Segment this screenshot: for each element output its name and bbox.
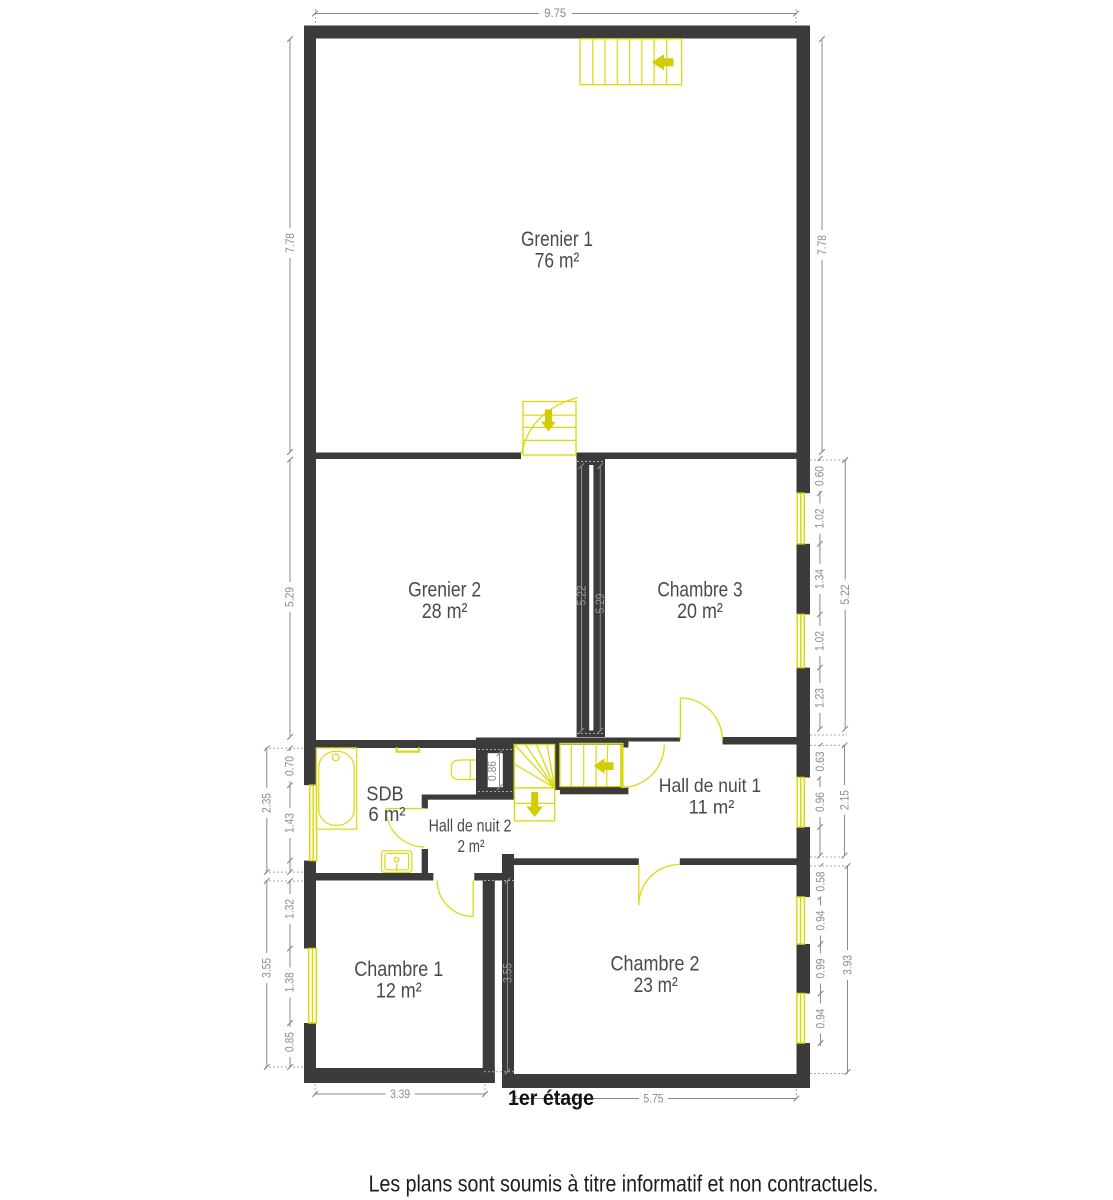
svg-text:11 m²: 11 m² (689, 797, 735, 819)
svg-text:2 m²: 2 m² (458, 836, 485, 856)
svg-text:0.63: 0.63 (815, 752, 827, 772)
svg-text:0.58: 0.58 (815, 872, 827, 892)
svg-text:1.02: 1.02 (815, 509, 827, 529)
svg-text:3.39: 3.39 (390, 1089, 410, 1101)
svg-text:0.70: 0.70 (285, 756, 297, 776)
svg-text:Hall de nuit 1: Hall de nuit 1 (659, 775, 761, 797)
svg-text:9.75: 9.75 (544, 8, 566, 20)
svg-text:1.32: 1.32 (285, 899, 297, 919)
svg-text:SDB: SDB (366, 783, 403, 805)
svg-text:5.29: 5.29 (595, 594, 607, 614)
svg-text:3.55: 3.55 (502, 963, 514, 983)
svg-text:20 m²: 20 m² (677, 600, 723, 623)
svg-text:0.60: 0.60 (815, 466, 827, 486)
svg-text:5.22: 5.22 (840, 585, 852, 605)
svg-text:1.02: 1.02 (815, 631, 827, 651)
svg-text:1.34: 1.34 (815, 568, 827, 589)
svg-text:Grenier 2: Grenier 2 (408, 578, 481, 601)
svg-text:7.78: 7.78 (285, 233, 297, 253)
svg-text:1.23: 1.23 (815, 688, 827, 708)
svg-text:0.96: 0.96 (815, 792, 827, 812)
svg-text:3.93: 3.93 (842, 955, 854, 975)
svg-text:0.86: 0.86 (487, 761, 499, 781)
svg-text:28 m²: 28 m² (422, 600, 468, 623)
svg-text:3.55: 3.55 (262, 958, 274, 978)
svg-text:2.35: 2.35 (262, 793, 274, 813)
svg-text:5.75: 5.75 (644, 1094, 664, 1106)
svg-text:1.38: 1.38 (285, 972, 297, 992)
svg-text:7.78: 7.78 (817, 235, 829, 255)
svg-text:23 m²: 23 m² (634, 974, 678, 997)
svg-text:12 m²: 12 m² (376, 979, 422, 1002)
svg-text:Chambre 1: Chambre 1 (354, 958, 443, 981)
svg-text:0.99: 0.99 (815, 959, 827, 979)
svg-text:Chambre 2: Chambre 2 (611, 953, 700, 976)
svg-text:1er étage: 1er étage (508, 1086, 594, 1110)
svg-text:Chambre 3: Chambre 3 (657, 578, 742, 601)
svg-text:2.15: 2.15 (839, 790, 851, 810)
svg-text:Les plans sont soumis à titre: Les plans sont soumis à titre informatif… (369, 1171, 879, 1197)
svg-text:6 m²: 6 m² (368, 804, 406, 826)
svg-text:5.22: 5.22 (576, 586, 588, 606)
svg-text:0.94: 0.94 (815, 910, 827, 931)
svg-text:0.85: 0.85 (285, 1032, 297, 1052)
svg-text:1.43: 1.43 (285, 813, 297, 833)
svg-text:5.29: 5.29 (284, 587, 296, 607)
svg-text:Hall de nuit 2: Hall de nuit 2 (429, 815, 512, 835)
svg-text:76 m²: 76 m² (535, 249, 580, 272)
svg-text:0.94: 0.94 (815, 1008, 827, 1029)
svg-text:Grenier 1: Grenier 1 (521, 228, 593, 251)
